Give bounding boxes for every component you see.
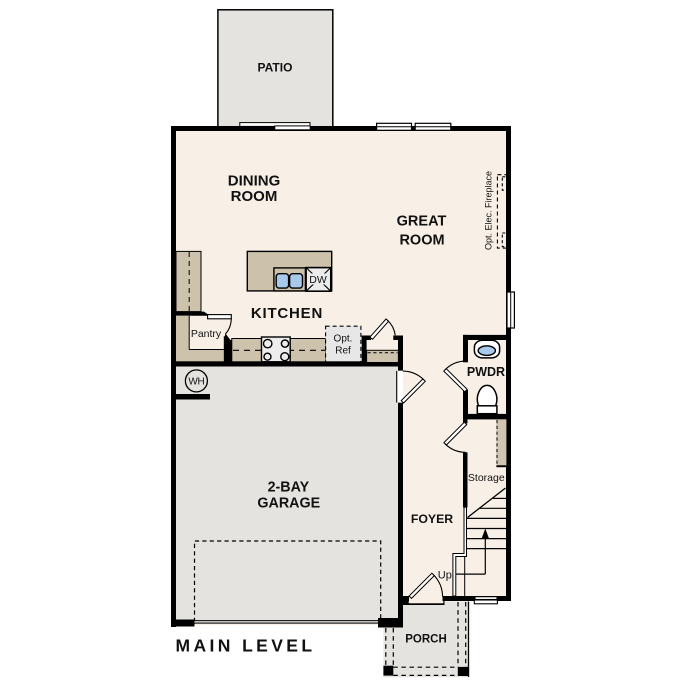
- svg-text:GARAGE: GARAGE: [257, 496, 320, 512]
- svg-text:KITCHEN: KITCHEN: [251, 305, 323, 322]
- svg-text:WH: WH: [188, 377, 204, 388]
- svg-text:ROOM: ROOM: [231, 188, 278, 205]
- svg-text:PWDR: PWDR: [467, 365, 505, 379]
- svg-text:Opt.: Opt.: [334, 334, 353, 345]
- svg-text:Up: Up: [438, 570, 452, 582]
- svg-text:Opt. Elec. Fireplace: Opt. Elec. Fireplace: [484, 171, 494, 250]
- svg-text:MAIN LEVEL: MAIN LEVEL: [176, 635, 316, 655]
- svg-text:Pantry: Pantry: [191, 328, 222, 340]
- svg-text:Storage: Storage: [468, 472, 505, 484]
- svg-text:Ref: Ref: [335, 346, 351, 357]
- svg-text:PORCH: PORCH: [405, 633, 447, 645]
- svg-text:PATIO: PATIO: [258, 61, 293, 75]
- svg-text:GREAT: GREAT: [397, 213, 447, 229]
- svg-text:FOYER: FOYER: [411, 512, 453, 526]
- svg-text:DW: DW: [309, 274, 327, 286]
- svg-text:ROOM: ROOM: [399, 232, 444, 248]
- svg-text:2-BAY: 2-BAY: [268, 480, 310, 496]
